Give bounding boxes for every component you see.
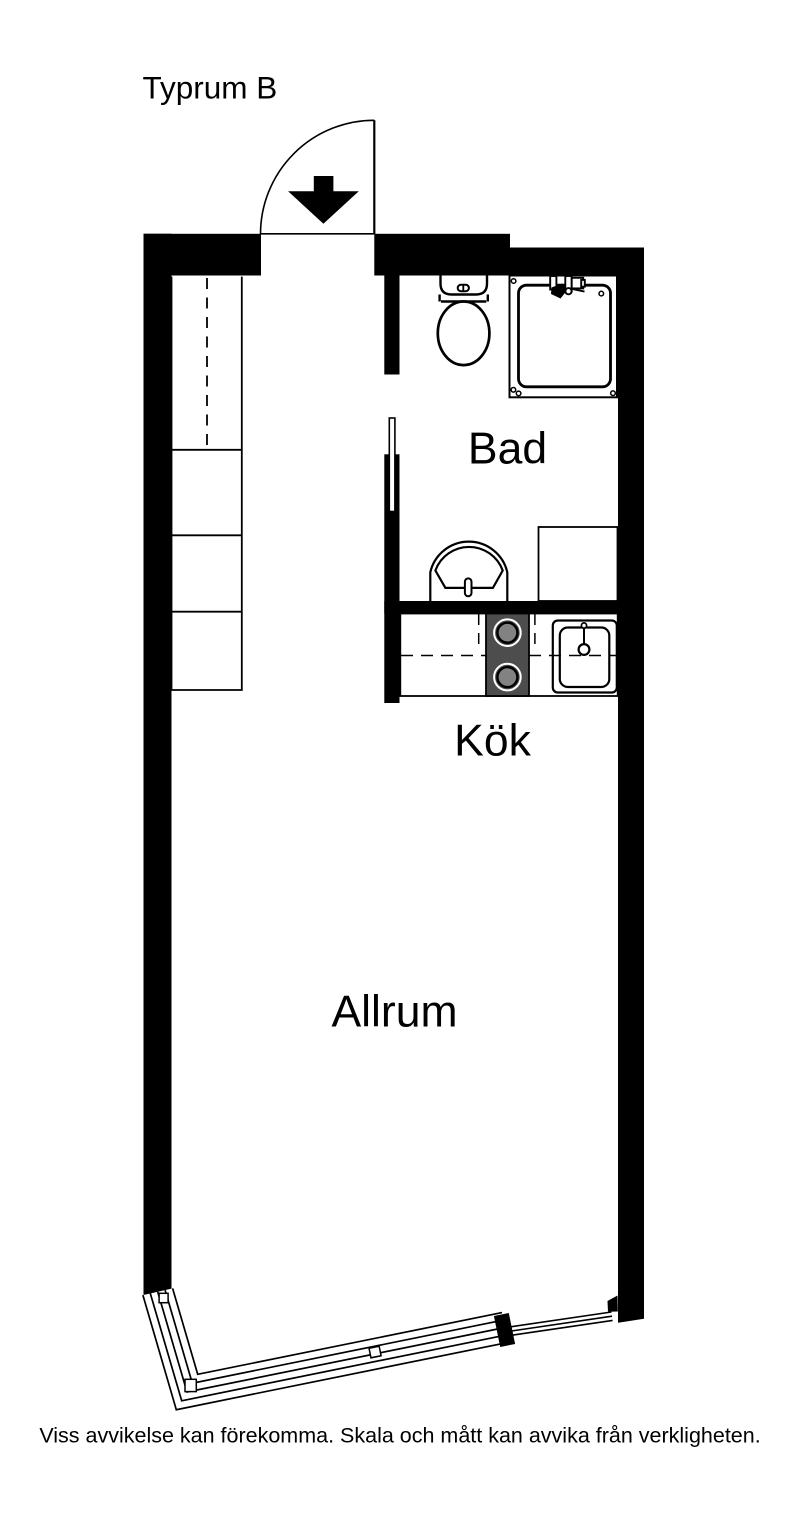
- svg-text:Viss avvikelse kan förekomma.: Viss avvikelse kan förekomma. Skala och …: [39, 1424, 760, 1448]
- svg-text:Allrum: Allrum: [331, 988, 457, 1037]
- svg-text:Kök: Kök: [454, 717, 531, 766]
- svg-text:Bad: Bad: [468, 425, 547, 474]
- svg-text:Typrum B: Typrum B: [143, 70, 278, 106]
